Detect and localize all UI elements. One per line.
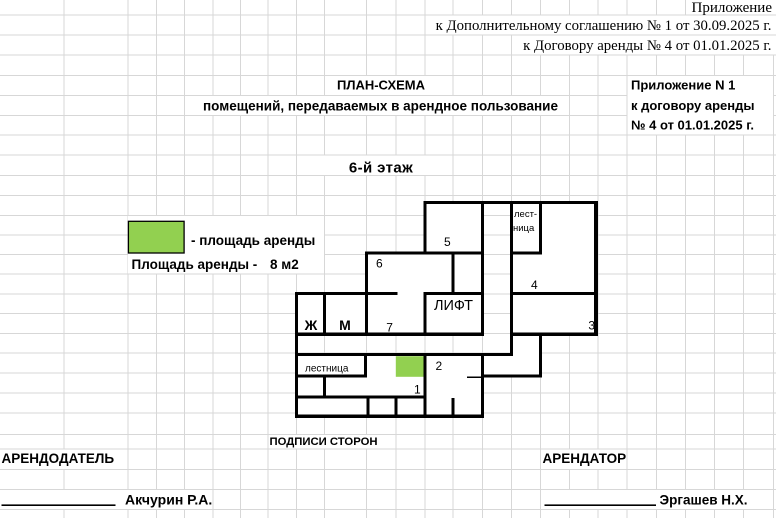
svg-text:М: М [339, 317, 351, 333]
svg-text:ПОДПИСИ СТОРОН: ПОДПИСИ СТОРОН [269, 436, 377, 448]
svg-text:Приложение N 1: Приложение N 1 [631, 78, 735, 93]
svg-text:лест-: лест- [514, 209, 537, 220]
svg-text:помещений, передаваемых в арен: помещений, передаваемых в арендное польз… [203, 99, 558, 114]
svg-text:8 м2: 8 м2 [270, 257, 299, 272]
svg-text:1: 1 [414, 382, 421, 396]
svg-text:АРЕНДОДАТЕЛЬ: АРЕНДОДАТЕЛЬ [2, 451, 115, 466]
svg-text:Акчурин Р.А.: Акчурин Р.А. [125, 492, 212, 508]
svg-text:к договору аренды: к договору аренды [631, 98, 754, 113]
svg-text:ПЛАН-СХЕМА: ПЛАН-СХЕМА [337, 78, 426, 93]
svg-text:Эргашев Н.Х.: Эргашев Н.Х. [660, 493, 748, 508]
svg-text:- площадь аренды: - площадь аренды [191, 233, 315, 248]
svg-text:Ж: Ж [304, 317, 318, 333]
svg-text:ЛИФТ: ЛИФТ [434, 298, 473, 314]
svg-text:7: 7 [386, 320, 393, 334]
svg-text:3: 3 [588, 318, 595, 332]
svg-text:лестница: лестница [305, 363, 349, 374]
svg-text:4: 4 [531, 278, 538, 292]
svg-text:6: 6 [376, 257, 383, 271]
svg-text:№ 4 от 01.01.2025 г.: № 4 от 01.01.2025 г. [631, 118, 754, 133]
svg-text:АРЕНДАТОР: АРЕНДАТОР [543, 451, 627, 466]
svg-text:к Договору аренды № 4 от 01.01: к Договору аренды № 4 от 01.01.2025 г. [523, 38, 771, 54]
svg-text:к Дополнительному соглашению №: к Дополнительному соглашению № 1 от 30.0… [436, 18, 772, 34]
svg-text:Приложение: Приложение [691, 0, 772, 16]
svg-text:ница: ница [513, 223, 535, 234]
svg-text:Площадь аренды -: Площадь аренды - [132, 257, 258, 272]
svg-text:6-й этаж: 6-й этаж [349, 159, 413, 176]
svg-text:5: 5 [444, 235, 451, 249]
svg-text:2: 2 [436, 359, 443, 373]
